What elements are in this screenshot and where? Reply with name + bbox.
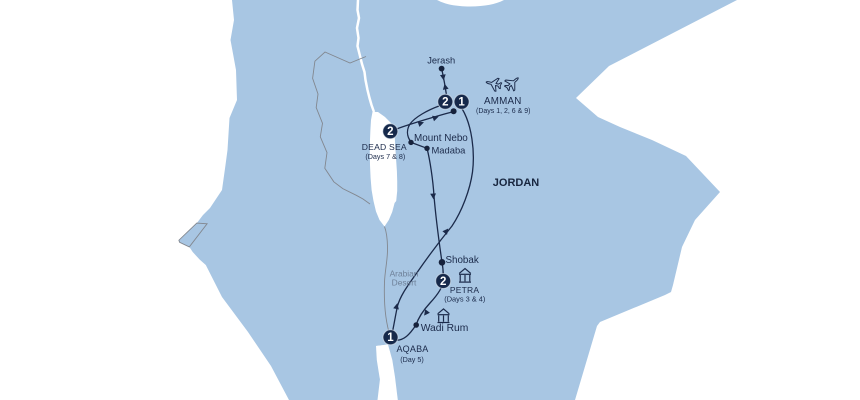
svg-text:Shobak: Shobak <box>446 255 479 266</box>
svg-text:AQABA: AQABA <box>396 344 428 354</box>
svg-text:Desert: Desert <box>392 278 417 288</box>
svg-text:(Days 3 & 4): (Days 3 & 4) <box>444 295 485 304</box>
svg-text:Madaba: Madaba <box>432 144 467 155</box>
svg-text:(Days 7 & 8): (Days 7 & 8) <box>365 152 405 161</box>
svg-text:Wadi Rum: Wadi Rum <box>421 323 469 334</box>
svg-text:2: 2 <box>440 276 446 288</box>
svg-text:(Days 1, 2, 6 & 9): (Days 1, 2, 6 & 9) <box>476 108 530 115</box>
svg-text:1: 1 <box>458 97 465 109</box>
svg-text:2: 2 <box>387 126 393 138</box>
svg-text:JORDAN: JORDAN <box>493 177 540 189</box>
svg-text:2: 2 <box>442 97 448 109</box>
svg-text:(Day 5): (Day 5) <box>400 355 424 364</box>
svg-text:AMMAN: AMMAN <box>484 96 521 107</box>
svg-text:Jerash: Jerash <box>427 55 455 65</box>
svg-text:DEAD SEA: DEAD SEA <box>362 142 407 152</box>
svg-text:1: 1 <box>387 332 394 344</box>
svg-text:Mount Nebo: Mount Nebo <box>414 133 468 144</box>
